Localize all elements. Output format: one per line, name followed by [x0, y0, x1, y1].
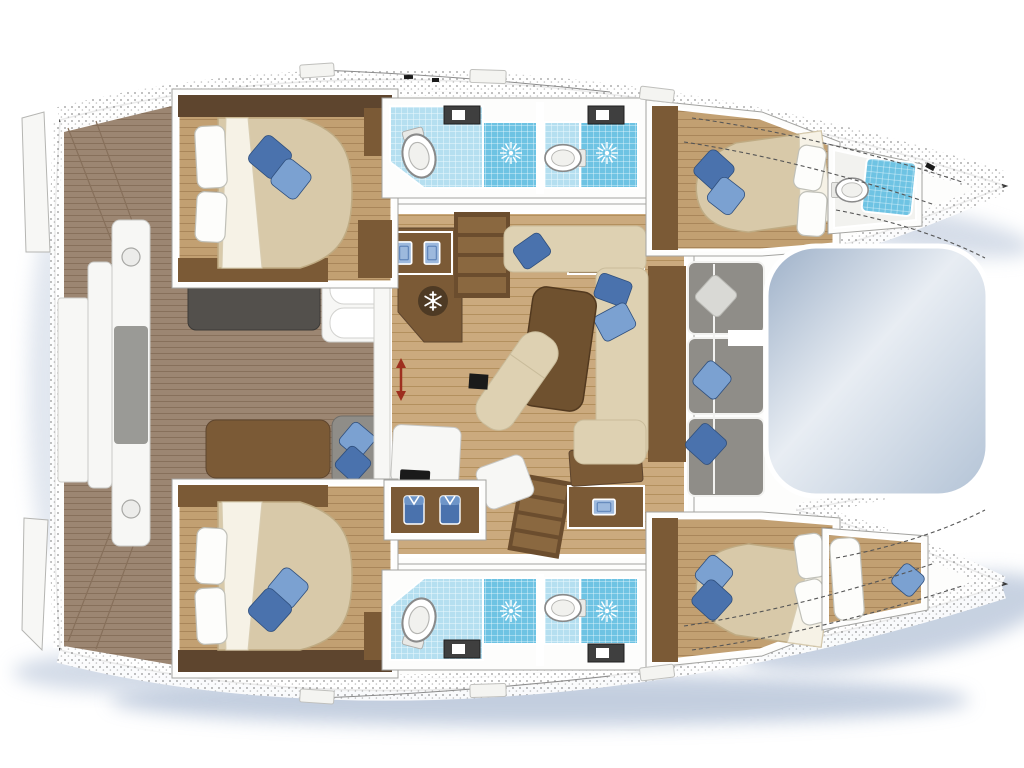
- bed-pillow: [796, 191, 827, 237]
- bed-pillow: [195, 587, 228, 644]
- wardrobe-shirt-icon: [404, 496, 424, 524]
- port-aft-cabin: [172, 89, 398, 288]
- cockpit-table-folded: [88, 262, 112, 488]
- floor-plan-svg: [0, 0, 1024, 768]
- berth-mattress: [829, 537, 865, 621]
- deck-hatch: [300, 63, 335, 78]
- sofa-backrest-cabinet: [648, 266, 686, 462]
- deck-hatch-icon: [122, 500, 140, 518]
- deck-hatch: [470, 683, 506, 697]
- catamaran-floor-plan: [0, 0, 1024, 768]
- port-bathrooms: [382, 98, 648, 198]
- starboard-wardrobe: [384, 480, 486, 540]
- sliding-door-track: [374, 282, 390, 480]
- sink-basin: [596, 648, 609, 658]
- forward-cockpit-sofa: [683, 262, 764, 496]
- desk-starboard-forward: [568, 486, 644, 528]
- aft-platform: [58, 298, 88, 482]
- cockpit-bench-table: [206, 420, 330, 478]
- port-swim-platform: [22, 112, 50, 252]
- sink-basin: [452, 110, 465, 120]
- companionway-stairs-port: [454, 212, 510, 298]
- sink-basin: [596, 110, 609, 120]
- starboard-forward-cabin: [646, 512, 840, 668]
- starboard-swim-platform: [22, 518, 48, 650]
- bed-pillow: [195, 191, 228, 243]
- vanity-sink-icon: [593, 499, 615, 514]
- deck-hatch: [470, 69, 506, 83]
- forward-cockpit: [683, 246, 988, 496]
- bathroom-divider: [536, 574, 544, 666]
- trampoline: [766, 246, 988, 496]
- wardrobe-shirt-icon: [440, 496, 460, 524]
- cleat-icon: [404, 75, 413, 79]
- bed-pillow: [195, 527, 228, 584]
- vanity-sink-icon: [424, 242, 439, 264]
- deck-hatch-icon: [122, 248, 140, 266]
- transom-bench-cushion: [114, 326, 148, 444]
- cabin-locker: [652, 518, 678, 662]
- port-fwd-shower: [580, 122, 638, 188]
- cabin-shelf: [178, 650, 392, 672]
- cabin-locker: [358, 220, 392, 278]
- cabin-locker: [652, 106, 678, 250]
- starboard-aft-cabin: [172, 479, 398, 678]
- cleat-icon: [432, 78, 439, 82]
- transom-bench: [112, 220, 150, 546]
- bed-pillow: [194, 125, 227, 188]
- sofa-pass-through: [728, 330, 764, 346]
- salon-post: [468, 373, 488, 389]
- forepeak-tile: [861, 158, 916, 217]
- cabin-shelf: [178, 95, 392, 117]
- bathroom-divider: [536, 102, 544, 194]
- starboard-bathrooms: [382, 570, 648, 670]
- sink-basin: [452, 644, 465, 654]
- vanity-sink-icon: [396, 242, 411, 264]
- deck-hatch: [300, 689, 335, 704]
